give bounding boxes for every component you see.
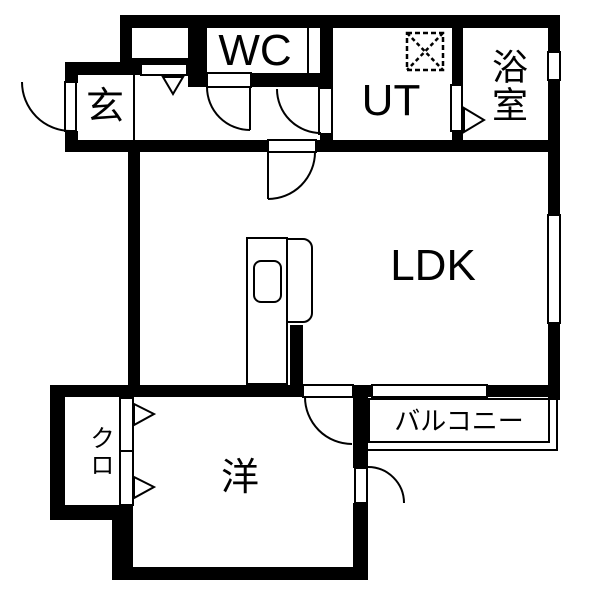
entrance-door-swing-arc [22, 82, 71, 131]
room-label-balcony: バルコニー [368, 398, 550, 443]
ldk-western-door-swing-arc [305, 397, 352, 444]
room-label-wc: WC [205, 28, 305, 73]
room-label-ldk: LDK [383, 243, 483, 288]
room-label-ut: UT [348, 78, 434, 123]
ut-door-swing-arc [277, 89, 321, 133]
room-label-closet: クロ [85, 422, 115, 482]
hall-storage-folding-door-triangle [163, 77, 183, 94]
bathroom-folding-door-triangle [464, 108, 484, 132]
room-label-genkan: 玄 [80, 87, 130, 127]
room-label-bathroom: 浴室 [487, 40, 527, 132]
wc-door-swing-arc [207, 87, 250, 130]
floorplan-canvas: 玄 WC UT 浴室 LDK 洋 クロ バルコニー [0, 0, 600, 600]
washing-machine-area-icon [407, 33, 443, 70]
closet-folding-door-triangle-upper [134, 404, 154, 425]
hall-ldk-door-swing-arc [268, 152, 315, 199]
closet-folding-door-triangle-lower [134, 477, 154, 498]
western-east-door-swing-arc [368, 467, 404, 503]
room-label-western-room: 洋 [215, 458, 265, 498]
